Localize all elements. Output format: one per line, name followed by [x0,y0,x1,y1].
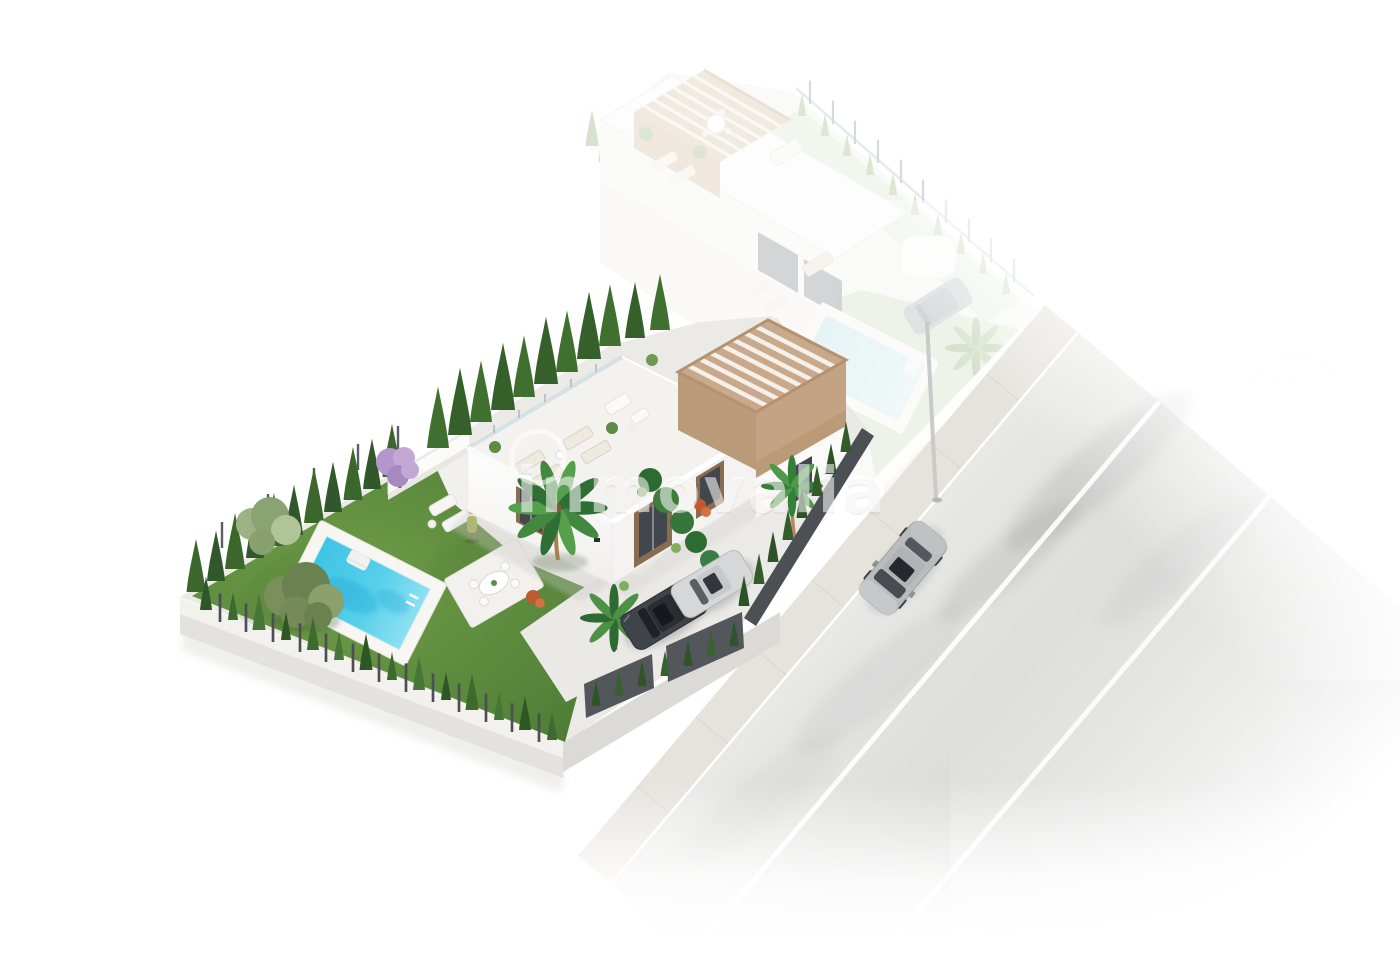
background-roof-table [707,115,725,133]
site-render-image: inmovalia inmovalia [0,0,1400,980]
road-fade-bottom [430,780,1400,980]
wall-light [594,538,600,542]
property-render: inmovalia inmovalia [0,0,1400,980]
watermark-text: inmovalia [516,454,888,527]
